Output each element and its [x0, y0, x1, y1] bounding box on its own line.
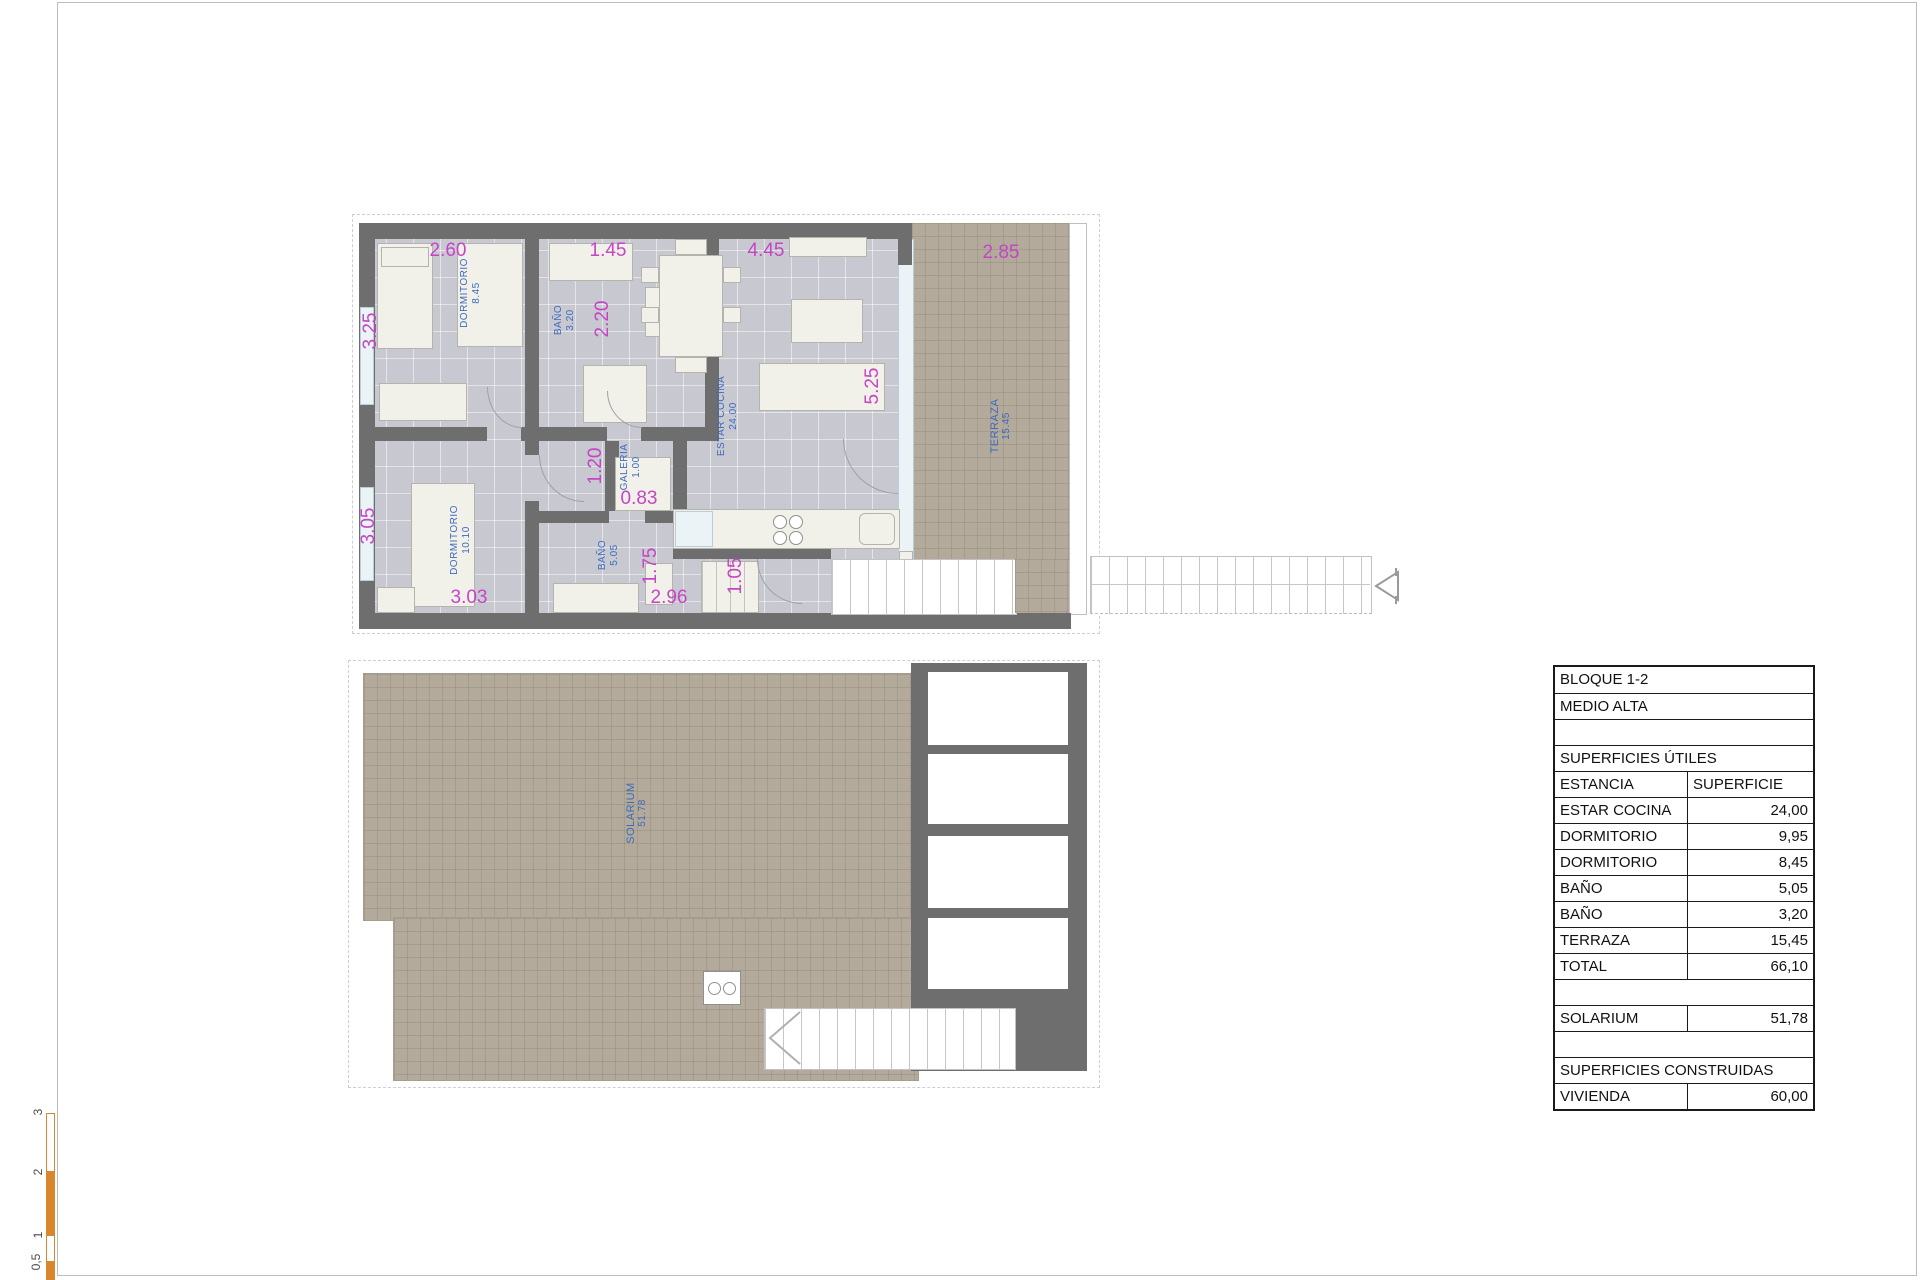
room-name-cell: BAÑO [1555, 902, 1687, 927]
room-name-cell: SOLARIUM [1555, 1006, 1687, 1031]
area-value-cell: 24,00 [1687, 798, 1813, 823]
spacer-row [1555, 1032, 1813, 1057]
solarium-stairs-arrow-icon [766, 1010, 802, 1066]
table-row: TERRAZA 15,45 [1555, 927, 1813, 953]
dim-bano2-height: 1.75 [640, 548, 662, 585]
section-title: SUPERFICIES CONSTRUIDAS [1555, 1058, 1813, 1083]
area-value-cell: 15,45 [1687, 928, 1813, 953]
scale-segment-3-2 [46, 1113, 55, 1172]
chair-1 [641, 267, 659, 283]
skylight-circle-1 [708, 982, 721, 995]
label-dorm2: DORMITORIO10.10 [449, 505, 473, 575]
table-row: BAÑO 5,05 [1555, 875, 1813, 901]
table-row: MEDIO ALTA [1555, 693, 1813, 719]
scale-bar [46, 1113, 55, 1280]
area-value-cell: 60,00 [1687, 1084, 1813, 1109]
pillar-terraza-top [898, 239, 912, 265]
label-terraza: TERRAZA15.45 [989, 399, 1013, 454]
light-well-4 [928, 918, 1068, 989]
upper-floor-plan: 2.60 1.45 4.45 2.85 3.25 2.20 5.25 3.05 … [352, 214, 1100, 634]
label-bano2: BAÑO5.05 [597, 540, 621, 570]
room-name-cell: ESTAR COCINA [1555, 798, 1687, 823]
stairs-direction-arrow-icon [1372, 566, 1400, 606]
room-name-cell: VIVIENDA [1555, 1084, 1687, 1109]
wall-mid-b [521, 427, 607, 441]
dim-terraza-width: 2.85 [983, 242, 1020, 264]
label-bano1: BAÑO3.20 [553, 305, 577, 335]
label-galeria: GALERIA1.00 [619, 444, 643, 491]
chair-5 [675, 239, 707, 255]
stove-burner-4 [789, 531, 803, 545]
area-value-cell: 3,20 [1687, 902, 1813, 927]
table-total-row: TOTAL 66,10 [1555, 953, 1813, 979]
wall-bano2-top-b [645, 511, 673, 523]
kitchen-sink [859, 513, 895, 545]
spacer-row [1555, 980, 1813, 1005]
chair-6 [675, 357, 707, 373]
dim-estar-width: 4.45 [748, 240, 785, 262]
light-well-2 [928, 754, 1068, 824]
surfaces-table: BLOQUE 1-2 MEDIO ALTA SUPERFICIES ÚTILES… [1553, 665, 1815, 1111]
scale-segment-1-05 [46, 1235, 55, 1262]
dim-dorm2-height: 3.05 [358, 508, 380, 545]
terraza-floor-lower [1015, 559, 1069, 613]
block-title: BLOQUE 1-2 [1555, 667, 1813, 693]
table-row: BLOQUE 1-2 [1555, 667, 1813, 693]
table-row: BAÑO 3,20 [1555, 901, 1813, 927]
dim-estar-height: 5.25 [862, 368, 884, 405]
dim-closet-width: 1.05 [725, 558, 747, 595]
vanity-bano2 [553, 583, 639, 613]
table-row [1555, 979, 1813, 1005]
scale-label-2: 2 [31, 1169, 45, 1176]
fridge [675, 511, 713, 547]
dim-galeria-width: 0.83 [621, 488, 658, 510]
wall-dorm1-right [525, 239, 539, 427]
terraza-railing [1069, 223, 1087, 615]
dim-bano2-width: 2.96 [651, 587, 688, 609]
external-stairs [1090, 556, 1372, 614]
chair-4 [723, 307, 741, 323]
scale-label-3: 3 [31, 1109, 45, 1116]
wall-mid-c [641, 427, 719, 441]
section-title: SUPERFICIES ÚTILES [1555, 746, 1813, 771]
light-well-1 [928, 672, 1068, 745]
wall-mid-a [375, 427, 487, 441]
room-name-cell: DORMITORIO [1555, 850, 1687, 875]
label-solarium: SOLARIUM51.78 [625, 782, 649, 843]
wall-dorm2-right [525, 501, 539, 613]
dim-bano1-height: 2.20 [592, 301, 614, 338]
solarium-plan: SOLARIUM51.78 [348, 660, 1100, 1088]
scale-label-1: 1 [31, 1232, 45, 1239]
table-row: VIVIENDA 60,00 [1555, 1083, 1813, 1109]
skylight-box [703, 971, 741, 1005]
chair-3 [723, 267, 741, 283]
bench-dorm1 [379, 383, 467, 421]
coffee-table [791, 299, 863, 343]
area-value-cell: 5,05 [1687, 876, 1813, 901]
label-dorm1: DORMITORIO8.45 [459, 258, 483, 328]
table-row [1555, 719, 1813, 745]
skylight-circle-2 [723, 982, 736, 995]
internal-stairs [831, 559, 1017, 615]
stove-burner-2 [789, 515, 803, 529]
stove-burner-1 [773, 515, 787, 529]
area-value-cell: 9,95 [1687, 824, 1813, 849]
chair-2 [641, 307, 659, 323]
table-row: DORMITORIO 8,45 [1555, 849, 1813, 875]
table-row: DORMITORIO 9,95 [1555, 823, 1813, 849]
room-name-cell: TOTAL [1555, 954, 1687, 979]
dim-bano1-width: 1.45 [590, 240, 627, 262]
wall-hall-top [525, 441, 539, 455]
tv-unit [789, 237, 867, 257]
pillow-dorm1 [381, 247, 429, 267]
column-header-room: ESTANCIA [1555, 772, 1687, 797]
table-row: ESTAR COCINA 24,00 [1555, 797, 1813, 823]
scale-segment-05-0 [46, 1262, 55, 1280]
external-stairs-midline [1090, 584, 1370, 585]
drawing-sheet: 2.60 1.45 4.45 2.85 3.25 2.20 5.25 3.05 … [0, 0, 1920, 1280]
dim-galeria-height: 1.20 [585, 448, 607, 485]
wall-bano2-top-a [539, 511, 609, 523]
area-value-cell: 66,10 [1687, 954, 1813, 979]
column-header-area: SUPERFICIE [1687, 772, 1813, 797]
room-name-cell: DORMITORIO [1555, 824, 1687, 849]
table-header-row: ESTANCIA SUPERFICIE [1555, 771, 1813, 797]
scale-segment-2-1 [46, 1172, 55, 1235]
dim-dorm2-width: 3.03 [451, 587, 488, 609]
area-value-cell: 51,78 [1687, 1006, 1813, 1031]
room-name-cell: BAÑO [1555, 876, 1687, 901]
scale-label-05: 0,5 [29, 1254, 43, 1271]
table-row: SOLARIUM 51,78 [1555, 1005, 1813, 1031]
bench-dorm2 [377, 587, 415, 613]
dining-table [659, 255, 723, 357]
level-title: MEDIO ALTA [1555, 694, 1813, 719]
wall-bottom [359, 613, 1071, 629]
table-row: SUPERFICIES CONSTRUIDAS [1555, 1057, 1813, 1083]
room-name-cell: TERRAZA [1555, 928, 1687, 953]
stove-burner-3 [773, 531, 787, 545]
table-row [1555, 1031, 1813, 1057]
area-value-cell: 8,45 [1687, 850, 1813, 875]
table-row: SUPERFICIES ÚTILES [1555, 745, 1813, 771]
spacer-row [1555, 720, 1813, 745]
dim-dorm1-height: 3.25 [360, 313, 382, 350]
label-estar: ESTAR COCINA24.00 [716, 376, 740, 456]
light-well-3 [928, 836, 1068, 908]
